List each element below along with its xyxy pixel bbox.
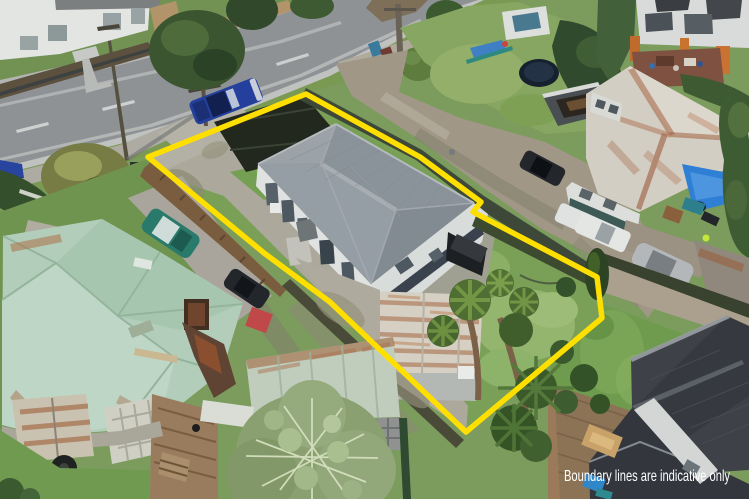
svg-text:Boundary lines are indicative: Boundary lines are indicative only xyxy=(564,468,730,485)
